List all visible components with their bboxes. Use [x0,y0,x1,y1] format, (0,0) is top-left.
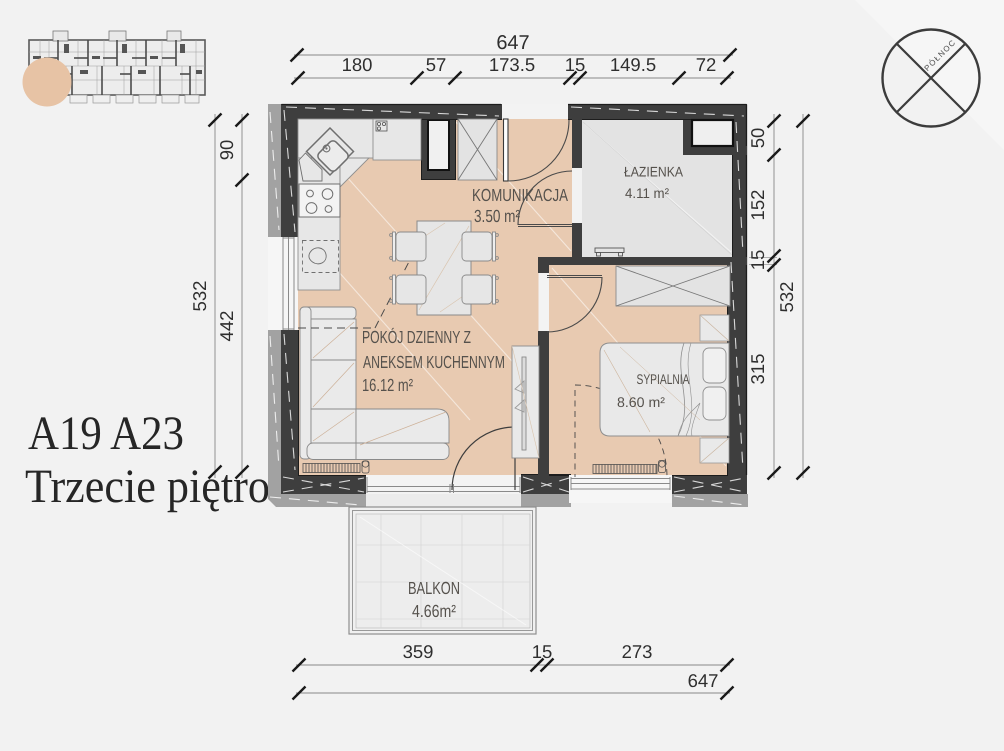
svg-text:152: 152 [747,190,768,221]
svg-text:315: 315 [747,354,768,385]
svg-text:90: 90 [216,140,237,161]
svg-text:4.66m²: 4.66m² [412,601,456,621]
svg-text:15: 15 [532,641,553,662]
svg-text:532: 532 [776,282,797,313]
svg-text:359: 359 [403,641,434,662]
svg-text:273: 273 [622,641,653,662]
svg-text:4.11 m²: 4.11 m² [625,185,669,201]
svg-text:442: 442 [216,311,237,342]
svg-text:BALKON: BALKON [408,578,460,598]
svg-text:173.5: 173.5 [489,54,535,75]
svg-text:180: 180 [342,54,373,75]
svg-text:KOMUNIKACJA: KOMUNIKACJA [472,185,568,205]
svg-text:15: 15 [747,250,768,271]
svg-text:57: 57 [426,54,447,75]
svg-text:ŁAZIENKA: ŁAZIENKA [624,164,684,180]
svg-text:16.12 m²: 16.12 m² [362,375,413,395]
svg-text:15: 15 [565,54,586,75]
svg-text:A19 A23: A19 A23 [28,407,184,460]
svg-text:532: 532 [189,281,210,312]
svg-text:72: 72 [696,54,717,75]
svg-text:8.60 m²: 8.60 m² [617,394,665,410]
svg-text:50: 50 [747,128,768,149]
svg-text:647: 647 [496,32,529,54]
svg-text:Trzecie piętro: Trzecie piętro [25,460,270,513]
svg-text:149.5: 149.5 [610,54,656,75]
svg-text:3.50 m²: 3.50 m² [474,206,520,226]
svg-text:SYPIALNIA: SYPIALNIA [637,371,690,387]
svg-text:POKÓJ DZIENNY Z: POKÓJ DZIENNY Z [362,327,471,347]
svg-text:647: 647 [688,670,719,691]
svg-text:ANEKSEM KUCHENNYM: ANEKSEM KUCHENNYM [363,352,505,372]
